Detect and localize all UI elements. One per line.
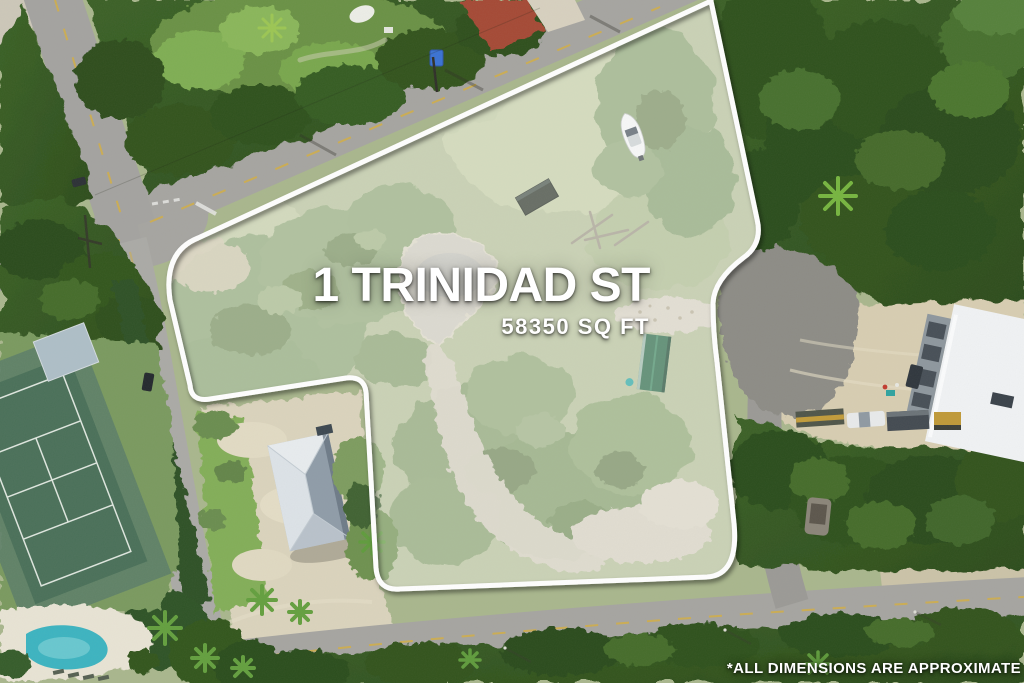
aerial-photo: 1 TRINIDAD ST 58350 SQ FT *ALL DIMENSION… bbox=[0, 0, 1024, 683]
photo-grain bbox=[0, 0, 1024, 683]
dimensions-disclaimer: *ALL DIMENSIONS ARE APPROXIMATE bbox=[727, 660, 1021, 677]
aerial-scene bbox=[0, 0, 1024, 683]
